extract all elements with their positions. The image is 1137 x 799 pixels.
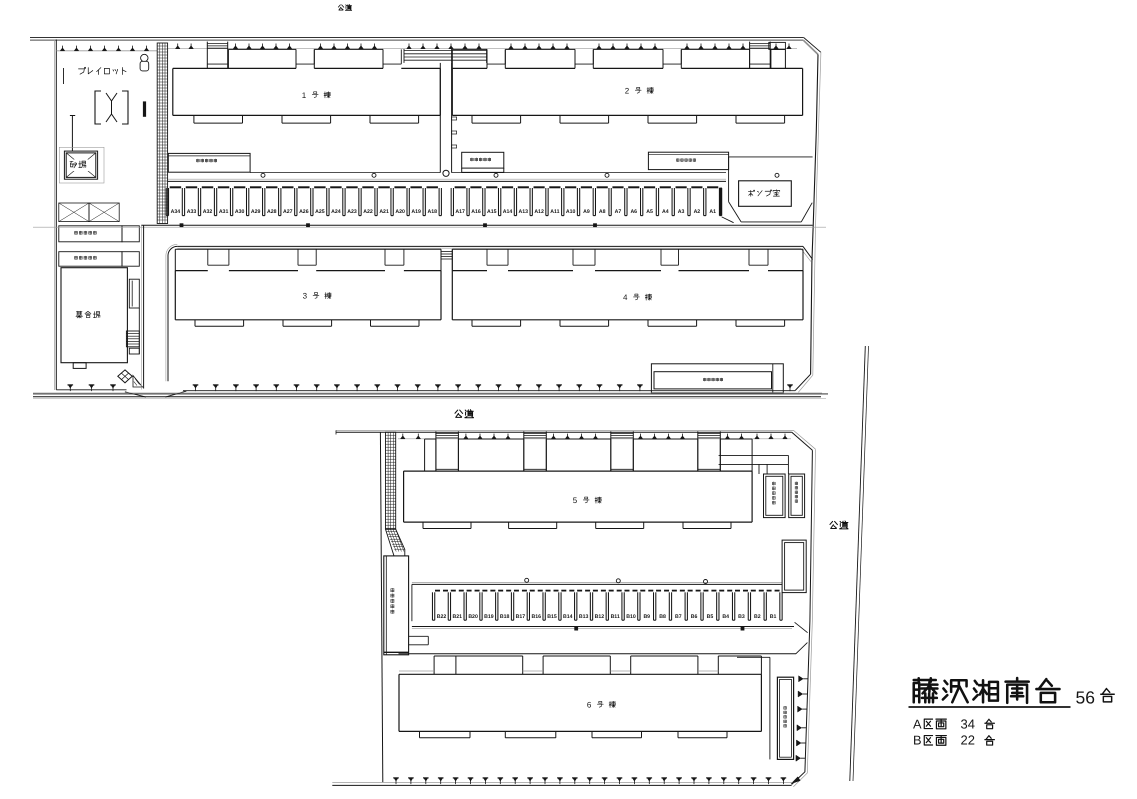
svg-text:B9: B9	[643, 614, 650, 620]
svg-text:A27: A27	[283, 209, 293, 215]
svg-text:A31: A31	[219, 209, 229, 215]
svg-text:6: 6	[587, 700, 592, 709]
svg-text:4: 4	[623, 293, 628, 302]
svg-text:B6: B6	[691, 614, 698, 620]
svg-text:A12: A12	[534, 209, 544, 215]
svg-text:B20: B20	[468, 614, 478, 620]
svg-text:B4: B4	[722, 614, 729, 620]
svg-text:A4: A4	[662, 209, 669, 215]
svg-text:B: B	[913, 733, 922, 748]
svg-text:A6: A6	[630, 209, 637, 215]
svg-text:B7: B7	[675, 614, 682, 620]
svg-text:A33: A33	[187, 209, 197, 215]
svg-text:A30: A30	[235, 209, 245, 215]
svg-text:A14: A14	[503, 209, 513, 215]
svg-text:A34: A34	[171, 209, 181, 215]
svg-text:A23: A23	[347, 209, 357, 215]
svg-text:A1: A1	[709, 209, 716, 215]
svg-text:A20: A20	[395, 209, 405, 215]
svg-text:A5: A5	[646, 209, 653, 215]
svg-text:A18: A18	[427, 209, 437, 215]
svg-text:B21: B21	[453, 614, 463, 620]
svg-text:B14: B14	[563, 614, 573, 620]
svg-text:B10: B10	[626, 614, 636, 620]
svg-text:A21: A21	[379, 209, 389, 215]
svg-text:A16: A16	[471, 209, 481, 215]
svg-text:B13: B13	[579, 614, 589, 620]
svg-text:B16: B16	[531, 614, 541, 620]
svg-text:B12: B12	[595, 614, 605, 620]
svg-text:A11: A11	[550, 209, 559, 215]
svg-text:1: 1	[302, 91, 307, 100]
svg-text:A7: A7	[615, 209, 622, 215]
svg-text:B1: B1	[770, 614, 777, 620]
svg-text:A10: A10	[566, 209, 576, 215]
svg-text:B2: B2	[754, 614, 761, 620]
svg-text:B19: B19	[484, 614, 494, 620]
svg-text:A17: A17	[455, 209, 465, 215]
svg-text:A9: A9	[583, 209, 590, 215]
svg-text:B15: B15	[547, 614, 557, 620]
svg-text:B17: B17	[516, 614, 526, 620]
svg-text:A15: A15	[487, 209, 497, 215]
svg-text:2: 2	[625, 86, 630, 95]
svg-text:A8: A8	[599, 209, 606, 215]
svg-text:22: 22	[961, 733, 975, 748]
svg-text:56: 56	[1076, 688, 1095, 708]
svg-text:34: 34	[961, 716, 975, 731]
svg-text:5: 5	[573, 496, 578, 505]
svg-text:A32: A32	[203, 209, 213, 215]
svg-text:A25: A25	[315, 209, 325, 215]
svg-text:A3: A3	[678, 209, 685, 215]
svg-text:A29: A29	[251, 209, 261, 215]
svg-text:B18: B18	[500, 614, 510, 620]
svg-text:A13: A13	[519, 209, 529, 215]
svg-text:B3: B3	[738, 614, 745, 620]
svg-text:B5: B5	[707, 614, 714, 620]
svg-text:A22: A22	[363, 209, 373, 215]
svg-text:A: A	[913, 716, 922, 731]
svg-text:3: 3	[303, 292, 308, 301]
svg-text:A19: A19	[411, 209, 421, 215]
svg-text:A24: A24	[331, 209, 341, 215]
svg-text:A26: A26	[299, 209, 309, 215]
svg-text:A28: A28	[267, 209, 277, 215]
svg-text:B8: B8	[659, 614, 666, 620]
svg-text:B11: B11	[611, 614, 620, 620]
svg-text:A2: A2	[694, 209, 701, 215]
svg-text:B22: B22	[437, 614, 447, 620]
